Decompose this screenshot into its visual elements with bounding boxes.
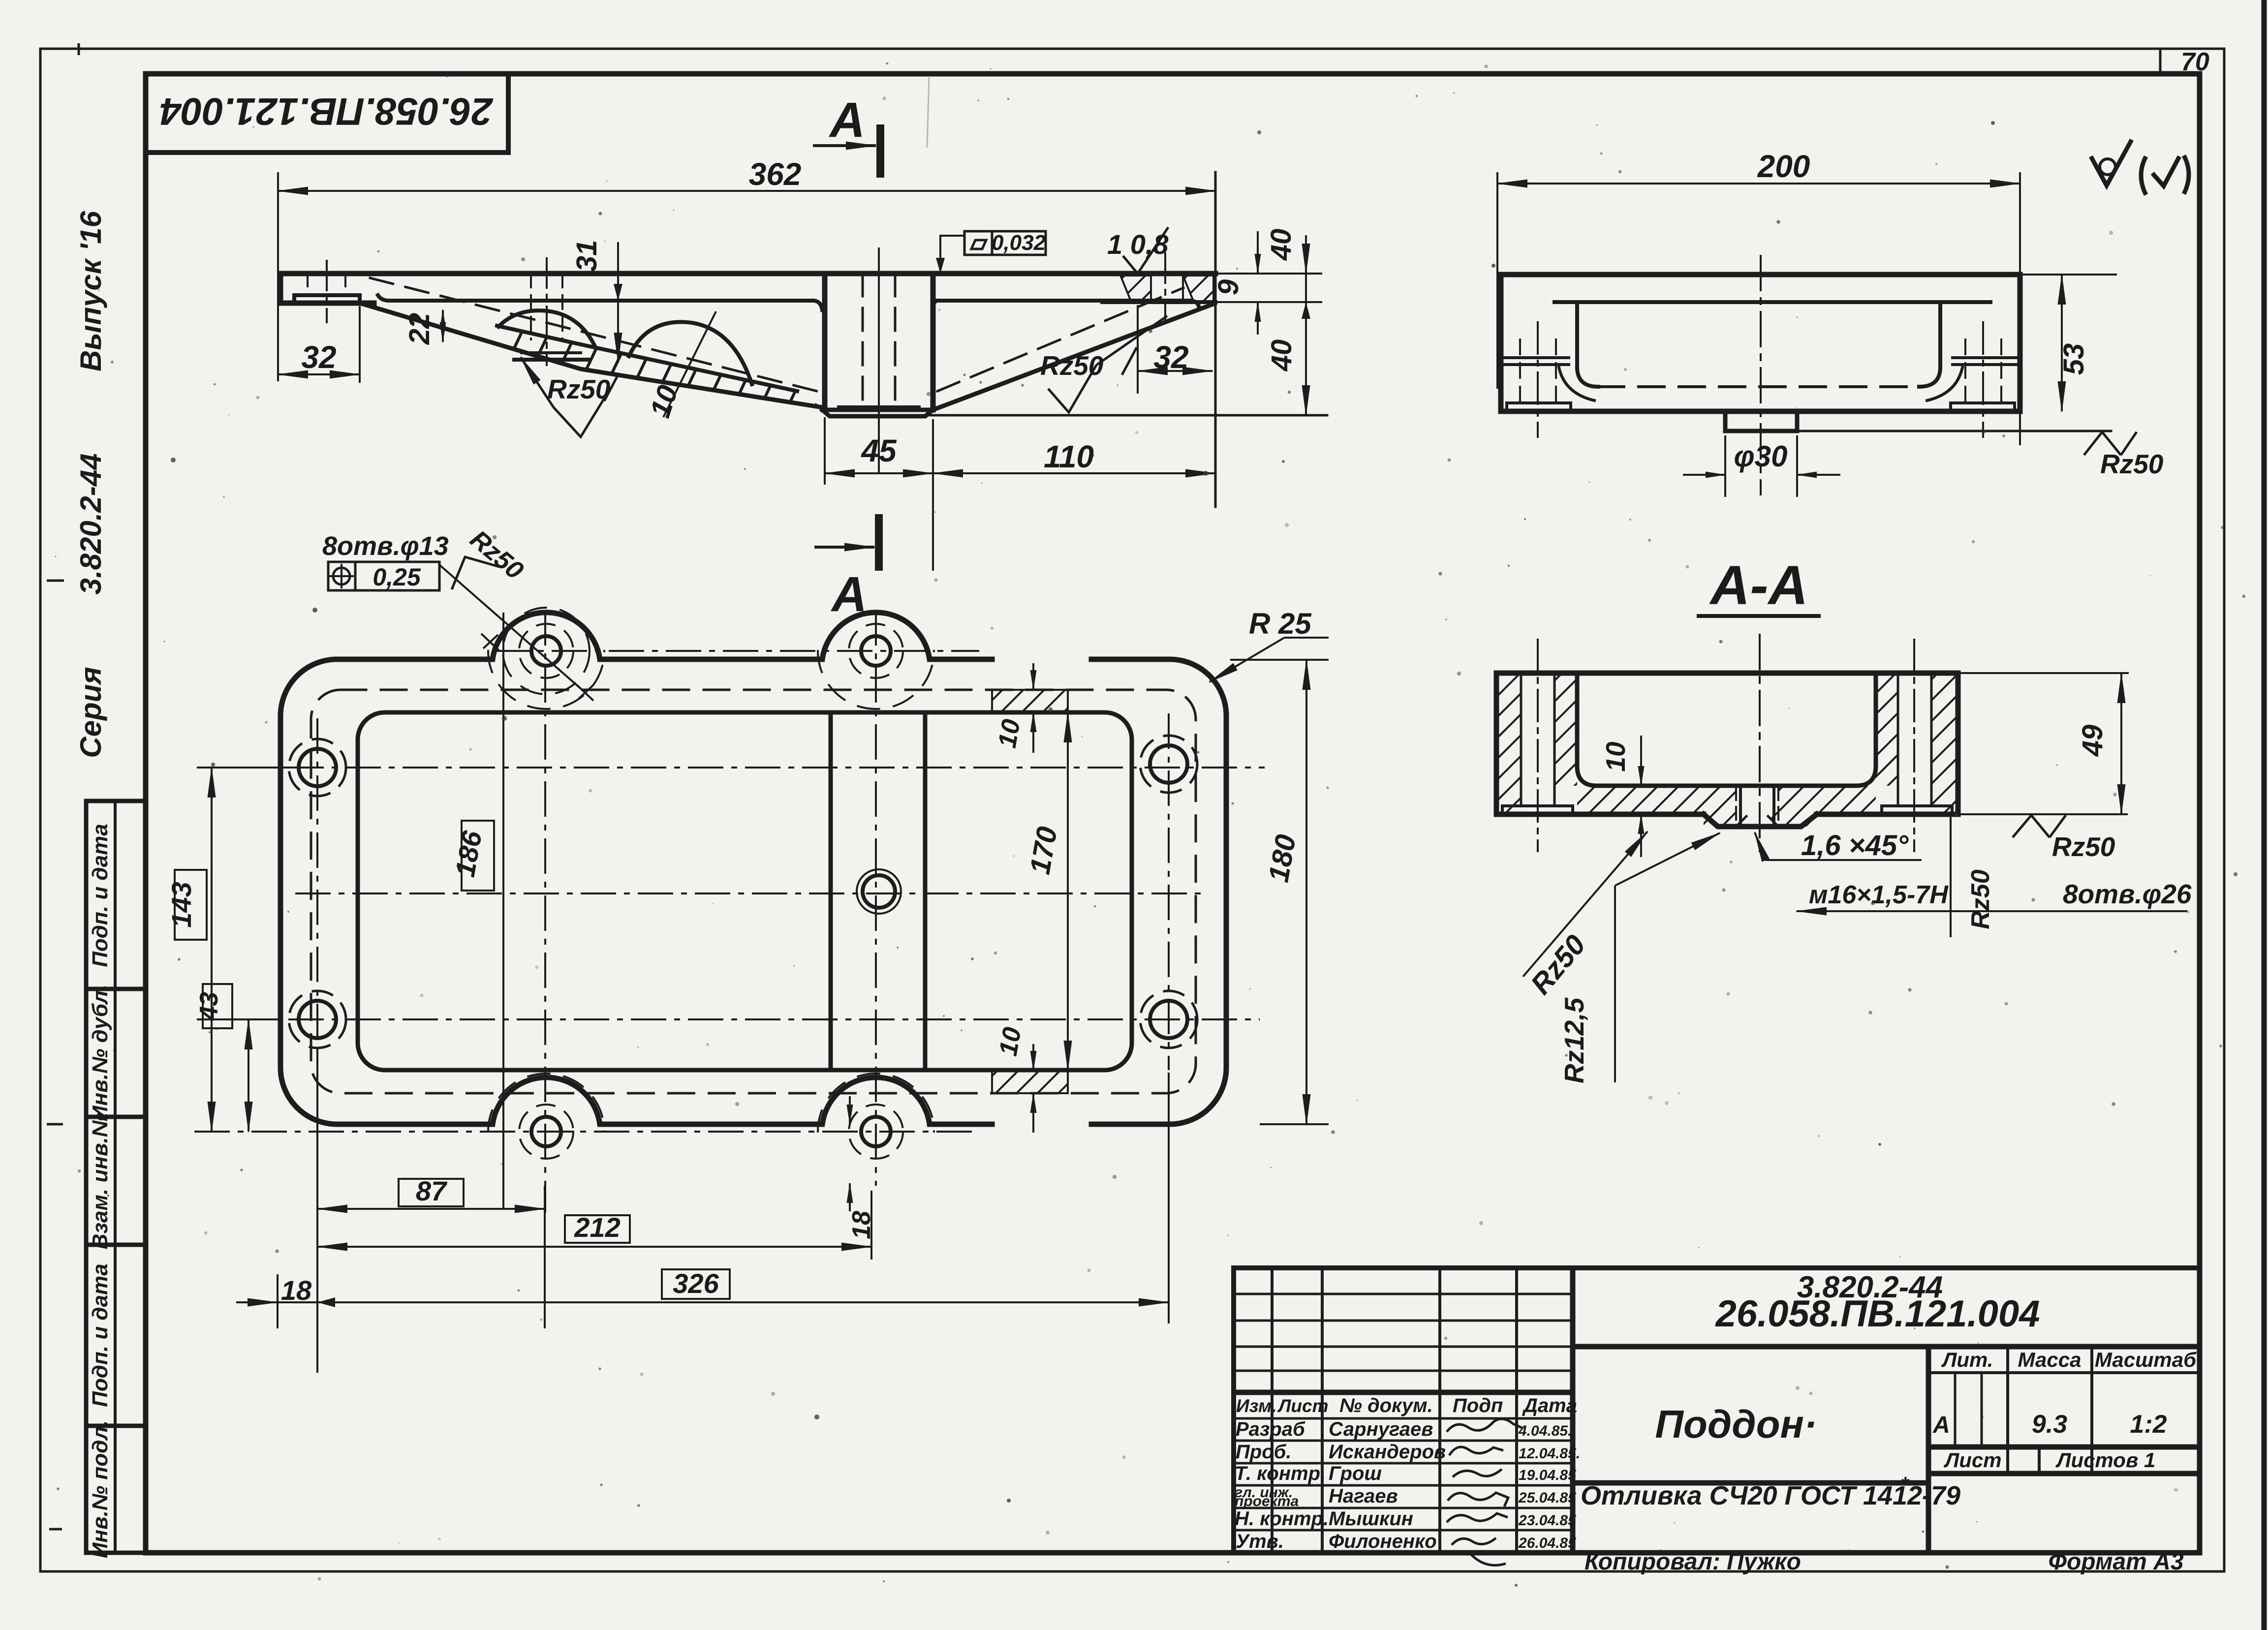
svg-text:87: 87 — [416, 1175, 448, 1206]
svg-text:А: А — [1932, 1412, 1950, 1438]
svg-text:Проб.: Проб. — [1236, 1441, 1292, 1463]
svg-text:Инв.№ дубл.: Инв.№ дубл. — [88, 984, 112, 1121]
svg-text:70: 70 — [2181, 48, 2209, 76]
svg-text:1 0,8: 1 0,8 — [1107, 229, 1169, 260]
svg-text:26.058.ПВ.121.004: 26.058.ПВ.121.004 — [160, 90, 494, 133]
svg-text:Н. контр.: Н. контр. — [1235, 1508, 1329, 1530]
svg-text:49: 49 — [2077, 725, 2109, 757]
svg-text:326: 326 — [673, 1268, 719, 1299]
svg-text:Подп. и дата: Подп. и дата — [88, 1263, 112, 1407]
svg-text:φ30: φ30 — [1734, 440, 1788, 473]
svg-text:Взам. инв.№: Взам. инв.№ — [88, 1112, 112, 1249]
svg-text:Лист: Лист — [1277, 1396, 1329, 1416]
svg-text:м16×1,5-7Н: м16×1,5-7Н — [1809, 881, 1949, 909]
svg-text:Выпуск '16: Выпуск '16 — [74, 211, 107, 371]
svg-text:Т. контр.: Т. контр. — [1235, 1463, 1326, 1484]
svg-text:Rz50: Rz50 — [2100, 449, 2164, 479]
svg-text:18: 18 — [847, 1211, 876, 1239]
svg-text:8отв.φ26: 8отв.φ26 — [2063, 879, 2192, 909]
svg-text:32: 32 — [1153, 339, 1188, 375]
svg-text:10: 10 — [1600, 741, 1631, 772]
svg-text:Подп. и дата: Подп. и дата — [88, 824, 112, 967]
svg-text:Подп: Подп — [1453, 1395, 1503, 1416]
svg-text:Утв.: Утв. — [1236, 1531, 1284, 1552]
svg-text:18: 18 — [281, 1275, 312, 1306]
svg-text:Rz50: Rz50 — [1040, 350, 1104, 381]
svg-text:Грош: Грош — [1329, 1463, 1382, 1484]
svg-text:A: A — [828, 92, 865, 148]
svg-text:Сарнугаев: Сарнугаев — [1329, 1418, 1433, 1440]
svg-text:53: 53 — [2058, 343, 2090, 375]
svg-text:№ докум.: № докум. — [1339, 1395, 1433, 1416]
svg-text:Филоненко: Филоненко — [1329, 1531, 1437, 1552]
svg-text:19.04.85: 19.04.85 — [1519, 1467, 1577, 1483]
svg-text:Изм.: Изм. — [1236, 1396, 1277, 1416]
svg-text:Rz50: Rz50 — [547, 374, 611, 404]
svg-text:10: 10 — [994, 1025, 1027, 1058]
svg-text:22: 22 — [404, 313, 435, 345]
svg-text:32: 32 — [301, 339, 336, 375]
svg-text:31: 31 — [571, 240, 603, 272]
svg-text:Rz50: Rz50 — [1966, 869, 1995, 929]
svg-text:4.04.85.: 4.04.85. — [1518, 1423, 1572, 1439]
svg-text:1,6 ×45°: 1,6 ×45° — [1801, 830, 1909, 861]
svg-text:45: 45 — [860, 433, 897, 468]
svg-text:9: 9 — [1212, 279, 1244, 295]
svg-text:40: 40 — [1265, 229, 1297, 261]
svg-text:12.04.85.: 12.04.85. — [1519, 1445, 1580, 1462]
svg-text:0,25: 0,25 — [373, 563, 421, 591]
svg-text:200: 200 — [1757, 149, 1810, 184]
svg-text:Копировал: Пужко: Копировал: Пужко — [1584, 1549, 1801, 1575]
svg-text:Серия: Серия — [74, 667, 107, 758]
svg-text:*: * — [1900, 1473, 1910, 1497]
svg-text:Листов 1: Листов 1 — [2055, 1448, 2156, 1472]
svg-text:Формат А3: Формат А3 — [2048, 1549, 2183, 1575]
svg-text:Масштаб: Масштаб — [2095, 1348, 2197, 1371]
svg-text:Искандеров: Искандеров — [1329, 1441, 1446, 1463]
svg-text:110: 110 — [1044, 439, 1094, 474]
svg-text:Лит.: Лит. — [1941, 1348, 1993, 1371]
svg-text:Масса: Масса — [2018, 1348, 2082, 1371]
svg-text:Rz50: Rz50 — [2052, 831, 2115, 862]
svg-text:23.04.85: 23.04.85 — [1518, 1512, 1577, 1529]
svg-text:Поддон·: Поддон· — [1655, 1402, 1817, 1446]
svg-text:Дата: Дата — [1522, 1395, 1577, 1416]
svg-text:0,032: 0,032 — [992, 231, 1046, 255]
svg-text:10: 10 — [993, 717, 1026, 750]
svg-text:Инв.№ подл.: Инв.№ подл. — [88, 1420, 112, 1558]
svg-text:43: 43 — [195, 992, 223, 1021]
svg-text:26.058.ПВ.121.004: 26.058.ПВ.121.004 — [1715, 1293, 2040, 1335]
svg-text:25.04.85: 25.04.85 — [1518, 1490, 1577, 1506]
svg-text:40: 40 — [1266, 339, 1298, 372]
svg-text:Разраб: Разраб — [1236, 1418, 1305, 1440]
svg-text:A-A: A-A — [1709, 554, 1808, 616]
svg-text:проекта: проекта — [1235, 1493, 1299, 1509]
svg-text:R 25: R 25 — [1249, 607, 1312, 640]
svg-text:26.04.85: 26.04.85 — [1518, 1535, 1577, 1551]
svg-text:Лист: Лист — [1943, 1448, 2001, 1472]
svg-text:9.3: 9.3 — [2032, 1410, 2067, 1439]
svg-text:3.820.2-44: 3.820.2-44 — [74, 454, 107, 595]
svg-text:1:2: 1:2 — [2130, 1410, 2167, 1439]
svg-text:212: 212 — [574, 1212, 620, 1243]
svg-text:143: 143 — [166, 882, 197, 927]
svg-text:8отв.φ13: 8отв.φ13 — [322, 531, 449, 561]
svg-text:Мышкин: Мышкин — [1329, 1508, 1413, 1530]
svg-text:Rz12,5: Rz12,5 — [1559, 997, 1589, 1083]
svg-text:362: 362 — [749, 156, 802, 192]
svg-text:Нагаев: Нагаев — [1329, 1485, 1398, 1507]
